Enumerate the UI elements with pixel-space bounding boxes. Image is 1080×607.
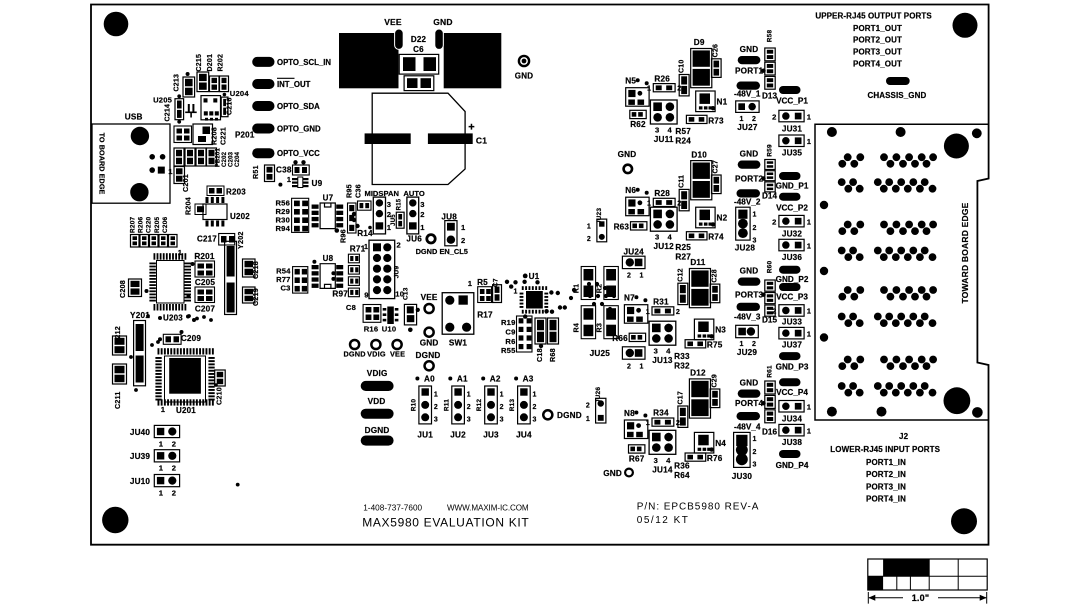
svg-text:3: 3 <box>500 417 504 424</box>
svg-text:C208: C208 <box>118 280 127 298</box>
svg-text:CHASSIS_GND: CHASSIS_GND <box>867 91 926 100</box>
svg-text:R203: R203 <box>226 188 246 197</box>
svg-text:R63: R63 <box>614 223 630 232</box>
svg-text:C221: C221 <box>219 127 228 145</box>
svg-text:DGND: DGND <box>416 351 441 360</box>
svg-text:C204: C204 <box>235 151 241 167</box>
svg-text:2: 2 <box>627 364 631 371</box>
svg-text:J2: J2 <box>899 432 909 441</box>
svg-text:FB201: FB201 <box>216 148 222 167</box>
svg-text:C10: C10 <box>679 60 686 73</box>
svg-text:PORT3_IN: PORT3_IN <box>866 482 906 491</box>
svg-text:PORT1_OUT: PORT1_OUT <box>853 24 902 33</box>
svg-text:1: 1 <box>807 217 812 226</box>
svg-text:C36: C36 <box>354 184 363 198</box>
svg-text:1: 1 <box>468 279 473 288</box>
svg-text:R24: R24 <box>675 137 691 146</box>
svg-text:C218: C218 <box>251 261 260 279</box>
svg-text:R75: R75 <box>707 341 723 350</box>
svg-text:JU25: JU25 <box>590 349 611 358</box>
svg-text:PORT4_OUT: PORT4_OUT <box>853 60 902 69</box>
svg-text:R27: R27 <box>675 253 691 262</box>
svg-text:R58: R58 <box>767 30 774 43</box>
svg-text:GND_P2: GND_P2 <box>776 275 809 284</box>
svg-text:JU13: JU13 <box>652 356 673 365</box>
svg-text:1: 1 <box>639 364 643 371</box>
svg-text:R205: R205 <box>154 216 161 233</box>
svg-text:2: 2 <box>172 489 176 498</box>
svg-text:VCC_P3: VCC_P3 <box>776 293 808 302</box>
svg-text:R64: R64 <box>674 471 690 480</box>
svg-text:U205: U205 <box>153 96 173 105</box>
svg-text:PORT2_IN: PORT2_IN <box>866 470 906 479</box>
svg-text:C202: C202 <box>222 151 228 167</box>
svg-text:R207: R207 <box>130 216 137 233</box>
svg-text:2: 2 <box>461 236 465 245</box>
svg-text:C203: C203 <box>229 151 235 167</box>
svg-text:2: 2 <box>752 341 756 348</box>
svg-text:2: 2 <box>752 225 756 232</box>
svg-text:D10: D10 <box>691 150 707 159</box>
svg-text:GND: GND <box>740 379 759 388</box>
svg-text:2: 2 <box>772 307 776 316</box>
svg-text:C220: C220 <box>146 216 153 233</box>
svg-text:1: 1 <box>159 489 164 498</box>
svg-text:C205: C205 <box>195 278 216 287</box>
svg-text:JU29: JU29 <box>737 348 758 357</box>
svg-text:C219: C219 <box>251 288 260 306</box>
svg-text:R74: R74 <box>708 233 724 242</box>
svg-text:R59: R59 <box>767 144 774 157</box>
svg-text:1: 1 <box>420 223 425 232</box>
svg-text:R33: R33 <box>674 352 690 361</box>
svg-text:1: 1 <box>586 416 590 423</box>
svg-text:U10: U10 <box>382 325 397 334</box>
svg-text:GND: GND <box>433 17 453 27</box>
svg-text:R61: R61 <box>767 365 774 378</box>
svg-text:R4: R4 <box>572 323 581 333</box>
svg-text:VCC_P1: VCC_P1 <box>776 97 808 106</box>
svg-text:N8: N8 <box>624 409 635 418</box>
svg-text:GND: GND <box>515 72 533 81</box>
svg-text:N5: N5 <box>625 77 636 86</box>
svg-text:C27: C27 <box>713 160 720 173</box>
svg-text:R11: R11 <box>443 399 450 411</box>
svg-text:PORT2_OUT: PORT2_OUT <box>853 36 902 45</box>
svg-text:JU4: JU4 <box>516 431 532 440</box>
svg-text:GND: GND <box>740 45 759 54</box>
svg-text:P201: P201 <box>235 131 255 140</box>
svg-text:JU10: JU10 <box>130 477 151 486</box>
svg-text:R28: R28 <box>654 189 670 198</box>
svg-text:GND: GND <box>618 150 637 159</box>
svg-text:3: 3 <box>752 462 756 469</box>
svg-text:C214: C214 <box>165 104 172 122</box>
svg-text:U7: U7 <box>323 194 334 203</box>
svg-text:C3: C3 <box>280 284 290 293</box>
svg-text:A0: A0 <box>424 375 435 384</box>
svg-text:N1: N1 <box>717 98 728 107</box>
svg-text:R17: R17 <box>477 311 493 320</box>
svg-text:1: 1 <box>752 436 756 443</box>
svg-text:R16: R16 <box>364 325 379 334</box>
svg-text:R15: R15 <box>396 198 402 210</box>
svg-text:1: 1 <box>159 464 164 473</box>
svg-text:1: 1 <box>807 307 812 316</box>
svg-text:R6: R6 <box>505 337 515 346</box>
svg-text:INT_OUT: INT_OUT <box>277 80 311 89</box>
svg-text:JU36: JU36 <box>782 253 803 262</box>
svg-text:VDIG: VDIG <box>367 369 388 378</box>
svg-text:R13: R13 <box>509 399 516 412</box>
svg-text:JU28: JU28 <box>735 244 756 253</box>
svg-text:4: 4 <box>667 126 672 135</box>
svg-text:JU30: JU30 <box>732 472 753 481</box>
svg-text:R94: R94 <box>275 224 290 233</box>
svg-text:R60: R60 <box>767 261 774 274</box>
svg-text:1: 1 <box>639 273 643 280</box>
svg-text:JU24: JU24 <box>624 248 645 257</box>
svg-text:C38: C38 <box>276 166 292 175</box>
svg-text:3: 3 <box>467 417 471 424</box>
svg-text:U1: U1 <box>529 272 540 281</box>
svg-text:R68: R68 <box>548 348 557 362</box>
svg-text:1: 1 <box>807 241 812 250</box>
svg-text:C13: C13 <box>403 287 410 300</box>
svg-text:GND_P4: GND_P4 <box>776 461 809 470</box>
svg-text:JU2: JU2 <box>450 431 466 440</box>
svg-text:N3: N3 <box>715 326 726 335</box>
svg-text:1: 1 <box>161 405 166 414</box>
svg-text:3: 3 <box>655 233 659 242</box>
svg-text:1: 1 <box>739 116 743 123</box>
svg-text:PORT1: PORT1 <box>735 67 764 76</box>
svg-text:3: 3 <box>533 417 537 424</box>
svg-text:PORT4: PORT4 <box>735 399 764 408</box>
svg-text:OPTO_GND: OPTO_GND <box>277 125 321 134</box>
svg-text:C206: C206 <box>162 216 169 233</box>
svg-text:C213: C213 <box>174 74 181 92</box>
svg-text:1: 1 <box>513 289 517 296</box>
svg-text:PORT3: PORT3 <box>735 291 764 300</box>
svg-text:C209: C209 <box>181 334 202 343</box>
svg-text:1: 1 <box>500 392 504 399</box>
svg-text:GND: GND <box>420 339 439 348</box>
svg-text:+: + <box>468 122 475 134</box>
svg-text:2: 2 <box>533 404 537 411</box>
svg-text:VDIG: VDIG <box>367 350 386 359</box>
svg-text:R67: R67 <box>629 454 645 463</box>
svg-text:R201: R201 <box>194 252 215 261</box>
svg-text:1: 1 <box>587 224 591 231</box>
svg-text:2: 2 <box>752 116 756 123</box>
svg-text:2: 2 <box>172 439 176 448</box>
svg-text:JU6: JU6 <box>406 235 422 244</box>
svg-text:JU14: JU14 <box>652 465 673 474</box>
svg-text:R208: R208 <box>210 127 219 145</box>
svg-text:A3: A3 <box>523 375 534 384</box>
svg-text:1: 1 <box>739 341 743 348</box>
svg-text:1: 1 <box>434 392 438 399</box>
svg-text:VEE: VEE <box>384 17 402 27</box>
svg-text:3: 3 <box>654 347 658 356</box>
svg-text:1: 1 <box>159 439 164 448</box>
svg-text:1: 1 <box>807 426 812 435</box>
svg-text:D16: D16 <box>762 428 777 437</box>
svg-text:D201: D201 <box>207 54 214 72</box>
svg-text:2: 2 <box>396 241 400 250</box>
svg-text:D14: D14 <box>762 192 777 201</box>
svg-text:1: 1 <box>646 307 650 316</box>
svg-text:C12: C12 <box>677 268 684 281</box>
svg-text:1: 1 <box>646 418 650 427</box>
svg-text:A1: A1 <box>457 375 468 384</box>
svg-text:C29: C29 <box>711 374 718 387</box>
svg-text:GND_P1: GND_P1 <box>776 182 809 191</box>
svg-text:JU31: JU31 <box>782 125 803 134</box>
svg-text:R5: R5 <box>477 278 488 287</box>
svg-text:1: 1 <box>807 112 812 121</box>
svg-text:R32: R32 <box>674 362 690 371</box>
svg-text:R12: R12 <box>476 399 483 412</box>
svg-text:1: 1 <box>807 403 812 412</box>
svg-text:OPTO_VCC: OPTO_VCC <box>277 149 320 158</box>
svg-text:VDD: VDD <box>368 397 386 406</box>
svg-text:JU39: JU39 <box>130 452 151 461</box>
svg-text:MAX5980 EVALUATION KIT: MAX5980 EVALUATION KIT <box>362 516 529 530</box>
svg-text:U201: U201 <box>176 406 196 415</box>
svg-text:2: 2 <box>676 307 680 316</box>
svg-text:GND: GND <box>603 469 622 478</box>
svg-text:Y202: Y202 <box>236 231 245 249</box>
svg-text:R95: R95 <box>345 184 354 198</box>
svg-text:2: 2 <box>627 273 631 280</box>
svg-text:DGND: DGND <box>343 350 365 359</box>
svg-text:1: 1 <box>533 392 537 399</box>
svg-text:TO BOARD EDGE: TO BOARD EDGE <box>98 133 107 195</box>
svg-text:R57: R57 <box>675 127 691 136</box>
svg-text:DGND: DGND <box>557 411 582 420</box>
svg-text:2: 2 <box>172 464 176 473</box>
svg-text:C7: C7 <box>493 278 500 287</box>
svg-text:C8: C8 <box>346 303 356 312</box>
svg-text:4: 4 <box>667 233 672 242</box>
svg-text:1.0": 1.0" <box>912 593 930 603</box>
svg-text:2: 2 <box>420 210 424 219</box>
svg-text:JU1: JU1 <box>417 431 433 440</box>
svg-text:4: 4 <box>666 347 671 356</box>
svg-text:1: 1 <box>168 167 173 176</box>
svg-text:U202: U202 <box>230 212 250 221</box>
svg-text:C9: C9 <box>505 327 515 336</box>
svg-text:D15: D15 <box>762 316 777 325</box>
svg-text:VEE: VEE <box>421 293 438 302</box>
svg-text:05/12 KT: 05/12 KT <box>637 515 690 526</box>
svg-text:2: 2 <box>772 217 776 226</box>
svg-text:JU11: JU11 <box>654 135 674 144</box>
svg-text:2: 2 <box>752 449 756 456</box>
svg-text:1: 1 <box>364 244 368 251</box>
svg-text:PORT2: PORT2 <box>735 174 764 183</box>
svg-text:R62: R62 <box>630 120 646 129</box>
svg-text:JU37: JU37 <box>782 341 803 350</box>
svg-text:C1: C1 <box>476 136 487 146</box>
svg-text:1: 1 <box>807 329 812 338</box>
svg-text:R19: R19 <box>501 318 516 327</box>
svg-text:U9: U9 <box>312 179 323 188</box>
svg-text:3: 3 <box>655 126 659 135</box>
svg-text:JU32: JU32 <box>782 230 803 239</box>
svg-text:N4: N4 <box>715 439 726 448</box>
svg-text:R3: R3 <box>594 323 603 333</box>
svg-text:C217: C217 <box>197 235 217 244</box>
svg-text:3: 3 <box>420 200 424 209</box>
svg-text:1: 1 <box>752 212 756 219</box>
svg-text:JU34: JU34 <box>782 415 803 424</box>
svg-text:-48V_2: -48V_2 <box>734 198 761 207</box>
svg-text:N7: N7 <box>624 294 635 303</box>
svg-text:-48V_4: -48V_4 <box>734 423 761 432</box>
svg-text:U204: U204 <box>230 89 250 98</box>
svg-text:TOWARD BOARD EDGE: TOWARD BOARD EDGE <box>960 202 970 303</box>
svg-text:D9: D9 <box>694 38 705 47</box>
svg-text:1: 1 <box>461 223 466 232</box>
svg-text:SW1: SW1 <box>449 339 468 348</box>
svg-text:1: 1 <box>467 392 471 399</box>
svg-text:R204: R204 <box>184 197 193 215</box>
svg-text:R76: R76 <box>707 454 723 463</box>
svg-text:R66: R66 <box>612 334 628 343</box>
svg-text:N2: N2 <box>717 214 728 223</box>
svg-text:C207: C207 <box>195 305 216 314</box>
svg-text:JU9: JU9 <box>394 266 401 279</box>
svg-text:P/N: EPCB5980 REV-A: P/N: EPCB5980 REV-A <box>637 502 760 513</box>
svg-text:1-408-737-7600: 1-408-737-7600 <box>363 504 422 513</box>
svg-text:N6: N6 <box>625 186 636 195</box>
svg-text:C18: C18 <box>535 348 544 362</box>
svg-text:2: 2 <box>467 404 471 411</box>
svg-text:JU40: JU40 <box>130 428 151 437</box>
svg-text:R51: R51 <box>251 165 260 179</box>
svg-text:3: 3 <box>387 200 391 209</box>
svg-text:D22: D22 <box>411 35 427 44</box>
svg-text:3: 3 <box>654 456 658 465</box>
svg-text:C210: C210 <box>215 387 224 405</box>
svg-text:JU3: JU3 <box>483 431 499 440</box>
svg-text:C6: C6 <box>413 45 424 54</box>
svg-text:WWW.MAXIM-IC.COM: WWW.MAXIM-IC.COM <box>447 504 529 513</box>
svg-text:C17: C17 <box>677 391 684 404</box>
svg-text:R25: R25 <box>675 243 691 252</box>
svg-text:JU38: JU38 <box>782 438 803 447</box>
svg-text:R10: R10 <box>410 399 417 412</box>
svg-text:VCC_P2: VCC_P2 <box>776 204 808 213</box>
svg-text:C211: C211 <box>113 391 122 409</box>
svg-text:C201: C201 <box>181 174 190 192</box>
svg-text:R31: R31 <box>653 298 669 307</box>
svg-text:R55: R55 <box>501 346 516 355</box>
svg-text:R36: R36 <box>674 461 690 470</box>
svg-text:2: 2 <box>500 404 504 411</box>
svg-text:USB: USB <box>125 113 143 122</box>
svg-text:R34: R34 <box>653 409 669 418</box>
svg-text:JU27: JU27 <box>737 123 758 132</box>
svg-text:R202: R202 <box>218 54 225 72</box>
svg-text:4: 4 <box>666 456 671 465</box>
svg-text:R73: R73 <box>708 116 724 125</box>
svg-text:PORT3_OUT: PORT3_OUT <box>853 48 902 57</box>
svg-text:1: 1 <box>647 198 651 207</box>
svg-text:D11: D11 <box>690 258 705 267</box>
svg-text:C216: C216 <box>227 97 234 115</box>
svg-text:GND: GND <box>740 150 759 159</box>
svg-text:1: 1 <box>647 84 651 93</box>
svg-text:2: 2 <box>586 403 590 410</box>
svg-text:VCC_P4: VCC_P4 <box>776 388 808 397</box>
svg-text:GND_P3: GND_P3 <box>776 363 809 372</box>
svg-text:LOWER-RJ45 INPUT PORTS: LOWER-RJ45 INPUT PORTS <box>830 445 940 454</box>
svg-text:GND: GND <box>740 267 759 276</box>
svg-text:R97: R97 <box>332 290 348 299</box>
svg-text:D12: D12 <box>690 369 706 378</box>
svg-text:UPPER-RJ45 OUTPUT PORTS: UPPER-RJ45 OUTPUT PORTS <box>815 12 932 21</box>
svg-text:R14: R14 <box>357 229 373 238</box>
svg-text:2: 2 <box>587 236 591 243</box>
svg-text:2: 2 <box>772 112 776 121</box>
svg-text:C26: C26 <box>713 44 720 57</box>
svg-text:3: 3 <box>434 417 438 424</box>
svg-text:C28: C28 <box>711 269 718 282</box>
svg-text:R26: R26 <box>654 74 670 83</box>
svg-text:JU35: JU35 <box>782 149 803 158</box>
svg-text:-48V_1: -48V_1 <box>734 90 761 99</box>
svg-text:A2: A2 <box>490 375 501 384</box>
svg-text:PORT4_IN: PORT4_IN <box>866 495 906 504</box>
svg-text:R96: R96 <box>339 229 348 243</box>
svg-text:1: 1 <box>287 175 292 184</box>
svg-text:DGND: DGND <box>416 247 438 256</box>
svg-text:OPTO_SCL_IN: OPTO_SCL_IN <box>277 58 331 67</box>
svg-text:PORT1_IN: PORT1_IN <box>866 458 906 467</box>
svg-text:EN_CL5: EN_CL5 <box>440 247 468 256</box>
svg-text:R206: R206 <box>138 216 145 233</box>
svg-text:C11: C11 <box>679 175 686 188</box>
svg-text:9: 9 <box>364 291 368 300</box>
svg-text:U8: U8 <box>323 254 334 263</box>
svg-text:2: 2 <box>434 404 438 411</box>
svg-text:-48V_3: -48V_3 <box>734 313 761 322</box>
svg-text:U203: U203 <box>163 314 183 323</box>
svg-text:1: 1 <box>807 137 812 146</box>
svg-text:DGND: DGND <box>365 426 390 435</box>
svg-text:VEE: VEE <box>390 350 405 359</box>
svg-text:JU33: JU33 <box>782 318 803 327</box>
svg-text:JU12: JU12 <box>654 242 675 251</box>
svg-text:OPTO_SDA: OPTO_SDA <box>277 102 320 111</box>
svg-text:C215: C215 <box>196 54 203 72</box>
